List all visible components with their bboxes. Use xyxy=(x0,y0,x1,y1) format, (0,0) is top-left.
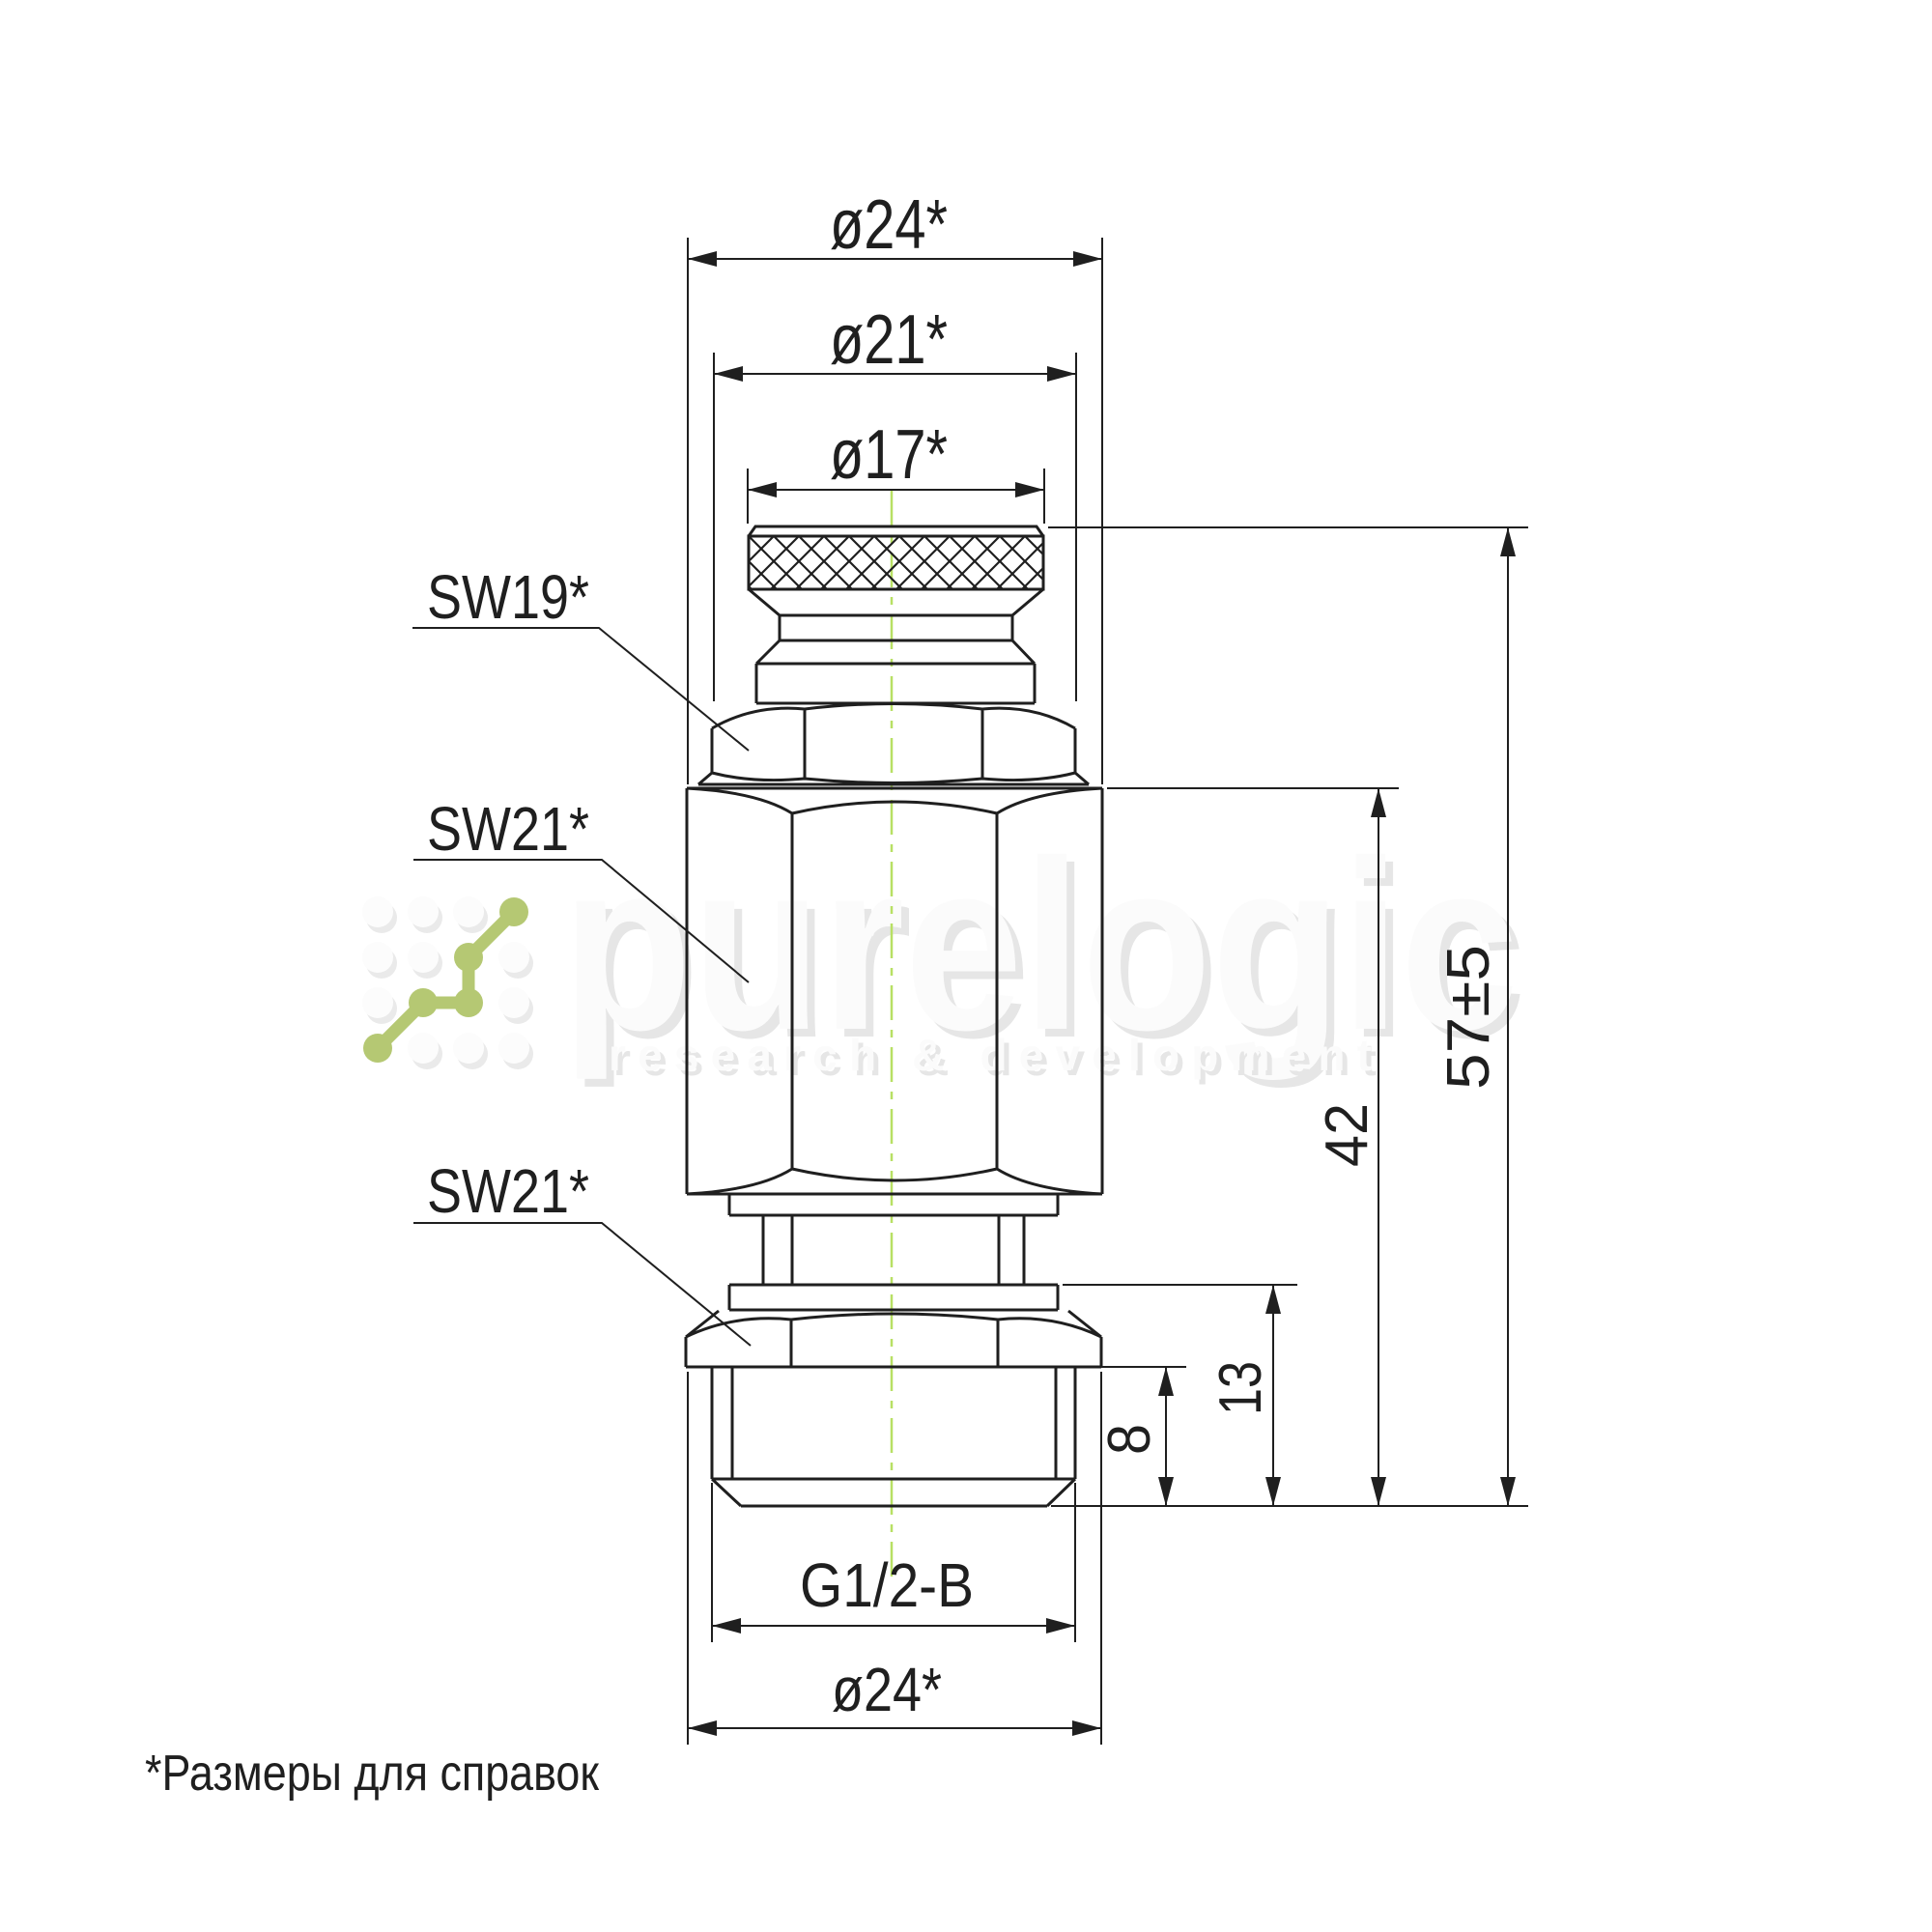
dim-arrow xyxy=(1371,1477,1386,1506)
dim-arrow xyxy=(1158,1477,1174,1506)
label-sw21-lower: SW21* xyxy=(427,1156,589,1226)
dim-dia24-bottom: ø24* xyxy=(832,1655,942,1724)
leader-sw19 xyxy=(412,628,749,751)
logo-dot xyxy=(408,1033,439,1064)
dim-arrow xyxy=(688,251,717,267)
dim-arrow xyxy=(688,1720,717,1736)
label-sw19: SW19* xyxy=(427,562,589,632)
flange-and-neck xyxy=(729,1194,1058,1310)
watermark-tagline: research & development xyxy=(609,1030,1372,1080)
dim-dia21: ø21* xyxy=(830,301,948,379)
dim-arrow xyxy=(1371,788,1386,817)
dim-height-8: 8 xyxy=(1096,1424,1163,1455)
logo-dot xyxy=(498,942,529,973)
cap-neck-collars xyxy=(749,589,1043,703)
logo-dot xyxy=(408,896,439,927)
dim-arrow xyxy=(1073,251,1102,267)
dim-arrow xyxy=(1046,1618,1075,1634)
dim-arrow xyxy=(714,366,743,382)
dim-arrow xyxy=(1158,1367,1174,1396)
logo-dot xyxy=(498,1033,529,1064)
dim-arrow xyxy=(1047,366,1076,382)
dim-arrow xyxy=(1265,1285,1281,1314)
logo-dot xyxy=(362,987,393,1018)
footnote: *Размеры для справок xyxy=(145,1746,599,1802)
dim-height-total: 57±5 xyxy=(1435,945,1502,1090)
logo-dot xyxy=(498,987,529,1018)
knurl-band xyxy=(749,536,1043,589)
logo-green-dot xyxy=(409,988,438,1017)
dim-dia17: ø17* xyxy=(830,416,948,494)
dim-arrow xyxy=(1015,482,1044,497)
logo-dot xyxy=(408,942,439,973)
logo-dot xyxy=(362,942,393,973)
dim-arrow xyxy=(1500,527,1516,556)
dim-arrow xyxy=(712,1618,741,1634)
logo-green-dot xyxy=(454,988,483,1017)
label-sw21-upper: SW21* xyxy=(427,794,589,864)
logo-green-dot xyxy=(499,897,528,926)
dim-arrow xyxy=(1265,1477,1281,1506)
dim-arrow xyxy=(1072,1720,1101,1736)
logo-green-dot xyxy=(454,943,483,972)
thread-section xyxy=(712,1367,1075,1506)
dim-height-42: 42 xyxy=(1314,1103,1380,1167)
dim-thread: G1/2-B xyxy=(800,1550,974,1620)
hex-nut-sw19 xyxy=(698,704,1089,785)
logo-zigzag-line xyxy=(378,912,514,1048)
technical-drawing-canvas: purelogic purelogic research & developme… xyxy=(0,0,1932,1932)
logo-green-dot xyxy=(363,1034,392,1063)
dim-dia24-top: ø24* xyxy=(830,186,948,264)
hex-nut-lower-sw21 xyxy=(686,1311,1101,1367)
logo-dot xyxy=(453,896,484,927)
dim-arrow xyxy=(748,482,777,497)
dim-height-13: 13 xyxy=(1207,1361,1274,1415)
logo-dot xyxy=(362,896,393,927)
dim-arrow xyxy=(1500,1477,1516,1506)
logo-dot xyxy=(453,1033,484,1064)
